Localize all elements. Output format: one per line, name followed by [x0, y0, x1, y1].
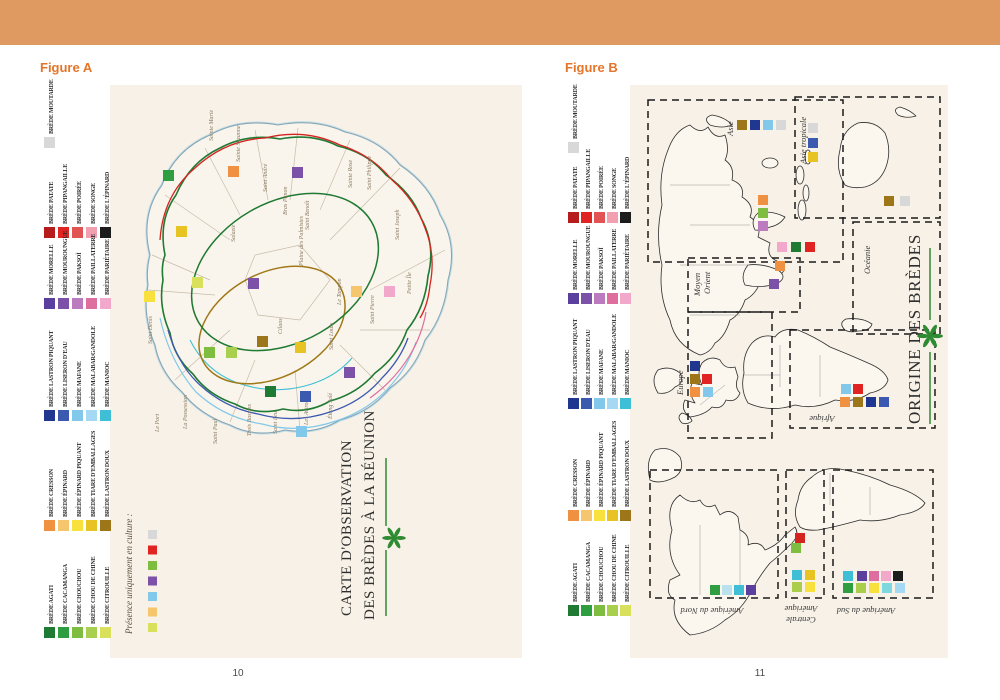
origin-swatch — [792, 570, 802, 580]
origin-swatch — [702, 374, 712, 384]
commune-label: Saint Philippe — [367, 156, 373, 191]
origin-swatch — [710, 585, 720, 595]
origin-swatch — [750, 120, 760, 130]
origin-swatch — [791, 242, 801, 252]
commune-label: Le Port — [155, 414, 161, 434]
legend-swatch — [568, 293, 579, 304]
legend-label: BRÈDE CITROUILLE — [103, 566, 111, 624]
legend-swatch — [58, 520, 69, 531]
legend-label: BRÈDE MOUROUNGUE — [584, 225, 592, 290]
legend-label: BRÈDE CHOUCHOU — [597, 546, 605, 602]
legend-label: BRÈDE LISERON D'EAU — [584, 329, 592, 395]
legend-swatch — [44, 137, 55, 148]
observation-swatch — [228, 166, 239, 177]
legend-label: BRÈDE MALABAR/GANDOLE — [610, 314, 618, 395]
legend-swatch — [44, 520, 55, 531]
observation-swatch — [257, 336, 268, 347]
origin-swatch — [758, 221, 768, 231]
plant-center — [928, 334, 932, 338]
observation-swatch — [344, 367, 355, 378]
legend-swatch — [86, 627, 97, 638]
origin-swatch — [763, 120, 773, 130]
legend-swatch — [581, 398, 592, 409]
origin-swatch — [857, 571, 867, 581]
legend-swatch — [86, 410, 97, 421]
note-swatch — [148, 546, 157, 555]
legend-label: BRÈDE MOUTARDE — [571, 84, 579, 139]
region-label: Orient — [702, 271, 712, 294]
legend-label: BRÈDE MORELLE — [571, 240, 579, 290]
legend-swatch — [607, 605, 618, 616]
commune-label: Sainte Suzanne — [236, 125, 242, 162]
region-label: Amérique du Sud — [836, 606, 896, 616]
plant-leaf — [382, 536, 393, 540]
legend-label: BRÈDE PAILLATERRE — [610, 229, 618, 290]
figure-a-legend: BRÈDE MOUTARDEBRÈDE PATATEBRÈDE PIPANGAI… — [44, 79, 111, 638]
legend-swatch — [594, 510, 605, 521]
observation-swatch — [384, 286, 395, 297]
legend-swatch — [44, 227, 55, 238]
legend-swatch — [620, 293, 631, 304]
legend-swatch — [620, 605, 631, 616]
note-swatch — [148, 530, 157, 539]
header-band — [0, 0, 1000, 45]
origin-swatch — [737, 120, 747, 130]
origin-swatch — [840, 397, 850, 407]
legend-label: BRÈDE LASTRON PIQUANT — [47, 331, 55, 407]
origin-swatch — [900, 196, 910, 206]
observation-swatch — [300, 391, 311, 402]
observation-swatch — [351, 286, 362, 297]
legend-label: BRÈDE AGATI — [571, 562, 579, 602]
indonesia — [798, 200, 806, 220]
origin-swatch — [866, 397, 876, 407]
commune-label: Salazie — [231, 224, 237, 242]
note-swatch — [148, 592, 157, 601]
legend-swatch — [607, 510, 618, 521]
legend-swatch — [100, 227, 111, 238]
origin-swatch — [795, 533, 805, 543]
book-spread: Figure A Figure B Sainte MarieSainte Suz… — [0, 0, 1000, 700]
origin-swatch — [791, 543, 801, 553]
origin-swatch — [792, 582, 802, 592]
observation-swatch — [248, 278, 259, 289]
origin-swatch — [805, 570, 815, 580]
observation-swatch — [163, 170, 174, 181]
region-label: Moyen — [692, 273, 702, 297]
legend-label: BRÈDE MAFANE — [75, 361, 83, 407]
legend-swatch — [58, 298, 69, 309]
legend-label: BRÈDE MANIOC — [103, 362, 111, 407]
region-label: Amérique du Nord — [680, 606, 745, 616]
legend-swatch — [620, 510, 631, 521]
commune-label: Étang Salé — [326, 393, 334, 420]
commune-label: Petite Île — [405, 272, 413, 295]
origin-swatch — [808, 123, 818, 133]
origin-swatch — [734, 585, 744, 595]
legend-swatch — [594, 605, 605, 616]
observation-swatch — [144, 291, 155, 302]
commune-label: Saint Benoît — [305, 200, 311, 230]
legend-label: BRÈDE CHOUCHOU — [75, 568, 83, 624]
figure-a-title-line1: CARTE D'OBSERVATION — [339, 440, 355, 616]
legend-label: BRÈDE PATATE — [47, 181, 55, 224]
note-swatch — [148, 561, 157, 570]
legend-swatch — [72, 298, 83, 309]
plant-center — [392, 536, 396, 540]
legend-swatch — [594, 212, 605, 223]
legend-swatch — [44, 298, 55, 309]
commune-label: Sainte Marie — [209, 110, 215, 141]
legend-label: BRÈDE CACAMANGA — [584, 541, 592, 602]
observation-swatch — [192, 277, 203, 288]
legend-swatch — [607, 398, 618, 409]
plant-leaf — [395, 536, 406, 540]
legend-swatch — [620, 398, 631, 409]
origin-swatch — [882, 583, 892, 593]
legend-swatch — [620, 212, 631, 223]
observation-swatch — [295, 342, 306, 353]
figure-a-label: Figure A — [40, 60, 93, 75]
origin-swatch — [758, 195, 768, 205]
legend-swatch — [568, 398, 579, 409]
legend-swatch — [568, 605, 579, 616]
origin-swatch — [853, 397, 863, 407]
page-number-right: 11 — [755, 668, 766, 679]
origin-swatch — [895, 583, 905, 593]
legend-label: BRÈDE ÉPINARD — [584, 459, 592, 507]
legend-label: BRÈDE MOUROUNGUE — [61, 230, 69, 295]
note-swatch — [148, 608, 157, 617]
legend-swatch — [568, 142, 579, 153]
legend-swatch — [568, 212, 579, 223]
plant-leaf — [917, 334, 929, 338]
legend-label: BRÈDE PAKSOÏ — [597, 247, 605, 290]
legend-label: BRÈDE CACAMANGA — [61, 563, 69, 624]
legend-label: BRÈDE MOUTARDE — [47, 79, 55, 134]
origin-swatch — [856, 583, 866, 593]
legend-label: BRÈDE CITROUILLE — [623, 544, 631, 602]
commune-label: Saint Joseph — [395, 210, 401, 241]
origin-swatch — [843, 571, 853, 581]
region-label: Centrale — [786, 615, 816, 625]
region-label: Europe — [675, 370, 685, 396]
origin-swatch — [690, 387, 700, 397]
observation-swatch — [296, 426, 307, 437]
legend-swatch — [581, 605, 592, 616]
origin-swatch — [805, 582, 815, 592]
origin-swatch — [690, 374, 700, 384]
legend-label: BRÈDE L'ÉPINARD — [103, 171, 111, 224]
legend-label: BRÈDE MANIOC — [623, 350, 631, 395]
legend-label: BRÈDE CHOU DE CHINE — [89, 556, 97, 624]
origin-swatch — [746, 585, 756, 595]
commune-label: La Possession — [183, 395, 189, 430]
figure-b-label: Figure B — [565, 60, 618, 75]
legend-label: BRÈDE ÉPINARD — [61, 469, 69, 517]
figure-b-legend: BRÈDE MOUTARDEBRÈDE PATATEBRÈDE PIPANGAI… — [568, 84, 631, 616]
legend-swatch — [100, 298, 111, 309]
commune-label: Saint Paul — [213, 419, 219, 444]
legend-swatch — [100, 520, 111, 531]
legend-label: BRÈDE LASTRON DOUX — [103, 449, 111, 517]
legend-swatch — [44, 410, 55, 421]
region-label: Asie — [725, 121, 735, 137]
commune-label: Saint Louis — [329, 322, 335, 350]
origin-swatch — [769, 279, 779, 289]
legend-label: BRÈDE AGATI — [47, 584, 55, 624]
legend-swatch — [594, 293, 605, 304]
legend-label: BRÈDE SONGE — [610, 168, 618, 209]
region-label: Asie tropicale — [798, 117, 808, 165]
legend-swatch — [72, 410, 83, 421]
legend-swatch — [607, 212, 618, 223]
region-label: Amérique — [784, 604, 818, 614]
legend-swatch — [568, 510, 579, 521]
note-swatch — [148, 577, 157, 586]
legend-swatch — [58, 627, 69, 638]
commune-label: Saint Leu — [273, 411, 279, 434]
legend-label: BRÈDE ÉPINARD PIQUANT — [597, 432, 605, 507]
legend-label: BRÈDE PIPANGAILLE — [584, 149, 592, 209]
origin-swatch — [703, 387, 713, 397]
legend-label: BRÈDE L'ÉPINARD — [623, 156, 631, 209]
commune-label: Saint André — [263, 163, 269, 192]
observation-swatch — [292, 167, 303, 178]
page-number-left: 10 — [232, 668, 244, 679]
origin-swatch — [843, 583, 853, 593]
origin-swatch — [893, 571, 903, 581]
origin-swatch — [722, 585, 732, 595]
origin-swatch — [808, 138, 818, 148]
legend-label: BRÈDE PATATE — [571, 166, 579, 209]
legend-swatch — [581, 212, 592, 223]
legend-label: BRÈDE SONGE — [89, 183, 97, 224]
legend-label: BRÈDE CHOU DE CHINE — [610, 534, 618, 602]
origin-swatch — [881, 571, 891, 581]
legend-swatch — [72, 627, 83, 638]
culture-note: Présence uniquement en culture : — [124, 513, 134, 635]
legend-label: BRÈDE MORELLE — [47, 245, 55, 295]
observation-swatch — [226, 347, 237, 358]
legend-swatch — [100, 410, 111, 421]
legend-label: BRÈDE TIARE D'EMBALLAGES — [610, 420, 618, 507]
legend-label: BRÈDE PIPANGAILLE — [61, 164, 69, 224]
legend-label: BRÈDE PARIÉTAIRE — [103, 239, 111, 295]
commune-label: Plaine des Palmistes — [299, 215, 305, 267]
figure-a-title-line2: DES BRÈDES À LA RÉUNION — [361, 410, 378, 620]
legend-label: BRÈDE LASTRON PIQUANT — [571, 319, 579, 395]
origin-swatch — [758, 208, 768, 218]
legend-swatch — [58, 410, 69, 421]
origin-swatch — [777, 242, 787, 252]
region-label: Afrique — [809, 414, 836, 424]
origin-swatch — [869, 571, 879, 581]
legend-swatch — [100, 627, 111, 638]
legend-swatch — [44, 627, 55, 638]
philippines — [762, 158, 778, 168]
origin-swatch — [869, 583, 879, 593]
origin-swatch — [776, 120, 786, 130]
legend-label: BRÈDE PARIÉTAIRE — [623, 234, 631, 290]
note-swatch — [148, 623, 157, 632]
legend-label: BRÈDE POIRÉE — [597, 166, 605, 209]
plant-leaf — [931, 334, 943, 338]
legend-swatch — [72, 520, 83, 531]
legend-swatch — [581, 293, 592, 304]
legend-label: BRÈDE CRESSON — [571, 458, 579, 507]
region-label: Océanie — [862, 245, 872, 274]
legend-swatch — [607, 293, 618, 304]
observation-swatch — [176, 226, 187, 237]
origin-swatch — [690, 361, 700, 371]
origin-swatch — [853, 384, 863, 394]
commune-label: Saint Pierre — [370, 295, 376, 324]
legend-swatch — [86, 298, 97, 309]
legend-swatch — [594, 398, 605, 409]
commune-label: Le Tampon — [337, 278, 343, 306]
legend-label: BRÈDE POIRÉE — [75, 181, 83, 224]
legend-swatch — [72, 227, 83, 238]
legend-label: BRÈDE PAILLATERRE — [89, 234, 97, 295]
legend-swatch — [86, 520, 97, 531]
observation-swatch — [265, 386, 276, 397]
figure-b-title-text: ORIGINE DES BRÈDES — [905, 234, 924, 424]
legend-label: BRÈDE PAKSOÏ — [75, 252, 83, 295]
legend-label: BRÈDE LASTRON DOUX — [623, 439, 631, 507]
legend-label: BRÈDE TIARE D'EMBALLAGES — [89, 430, 97, 517]
commune-label: Bras Panon — [283, 187, 289, 216]
commune-label: Cilaos — [278, 318, 284, 334]
legend-swatch — [581, 510, 592, 521]
observation-swatch — [204, 347, 215, 358]
legend-label: BRÈDE LISERON D'EAU — [61, 341, 69, 407]
origin-swatch — [805, 242, 815, 252]
origin-swatch — [841, 384, 851, 394]
commune-label: Trois Bassins — [247, 403, 253, 436]
origin-swatch — [884, 196, 894, 206]
origin-swatch — [879, 397, 889, 407]
origin-swatch — [808, 152, 818, 162]
legend-label: BRÈDE ÉPINARD PIQUANT — [75, 442, 83, 517]
legend-label: BRÈDE MALABAR/GANDOLE — [89, 326, 97, 407]
legend-label: BRÈDE CRESSON — [47, 468, 55, 517]
legend-label: BRÈDE MAFANE — [597, 349, 605, 395]
commune-label: Sainte Rose — [348, 160, 354, 188]
origin-swatch — [775, 261, 785, 271]
commune-label: Saint Denis — [148, 316, 154, 344]
